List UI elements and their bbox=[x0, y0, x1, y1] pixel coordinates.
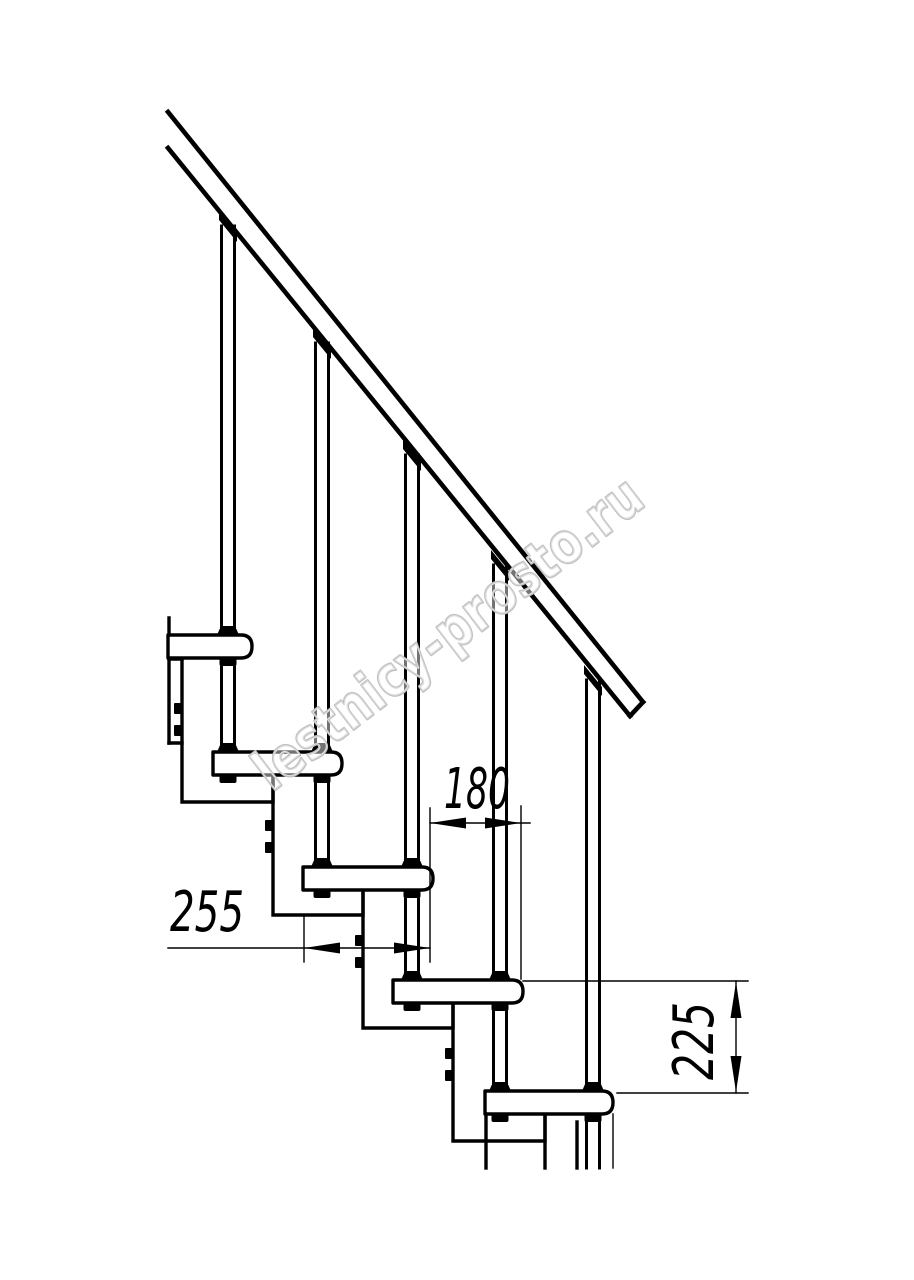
under-nut bbox=[585, 1114, 602, 1122]
bolt bbox=[174, 703, 182, 714]
support-pipe-3 bbox=[406, 890, 419, 980]
tread-1 bbox=[168, 635, 252, 658]
under-nut bbox=[220, 658, 237, 666]
support-pipe-2 bbox=[316, 775, 329, 867]
watermark-text: lestnicy-prosto.ru bbox=[241, 463, 657, 803]
bolt bbox=[265, 842, 273, 853]
staircase-technical-drawing: 255 180 225 lestnicy-prosto.ru bbox=[0, 0, 914, 1280]
tread-3 bbox=[303, 867, 433, 890]
under-nut bbox=[492, 1114, 509, 1122]
dimension-value-225: 225 bbox=[662, 1002, 727, 1080]
support-pipe-5 bbox=[587, 1114, 600, 1168]
bolt bbox=[445, 1048, 453, 1059]
tread-5 bbox=[485, 1091, 613, 1114]
under-nut bbox=[404, 1003, 421, 1011]
arrowhead-down bbox=[731, 1056, 742, 1092]
under-nut bbox=[314, 775, 331, 783]
dimension-value-180: 180 bbox=[444, 757, 510, 822]
arrowhead-up bbox=[731, 982, 742, 1018]
support-pipe-4 bbox=[494, 1003, 507, 1091]
bolt bbox=[445, 1070, 453, 1081]
under-nut bbox=[404, 890, 421, 898]
dimension-value-255: 255 bbox=[170, 880, 244, 945]
baluster-5 bbox=[587, 680, 600, 1091]
baluster-1 bbox=[222, 226, 235, 635]
tread-4 bbox=[393, 980, 523, 1003]
under-nut bbox=[492, 1003, 509, 1011]
bolt bbox=[174, 725, 182, 736]
support-pipe-1 bbox=[222, 658, 235, 752]
drawing-page: 255 180 225 lestnicy-prosto.ru bbox=[0, 0, 914, 1280]
bolt bbox=[265, 820, 273, 831]
dimension-step-run: 180 bbox=[430, 757, 530, 979]
handrail-end-cut bbox=[630, 702, 643, 716]
under-nut bbox=[220, 775, 237, 783]
arrowhead-left bbox=[304, 943, 340, 954]
bolt bbox=[355, 957, 363, 968]
dimension-step-rise: 225 bbox=[523, 981, 748, 1093]
bolt bbox=[355, 935, 363, 946]
arrowhead-right bbox=[394, 943, 430, 954]
under-nut bbox=[314, 890, 331, 898]
